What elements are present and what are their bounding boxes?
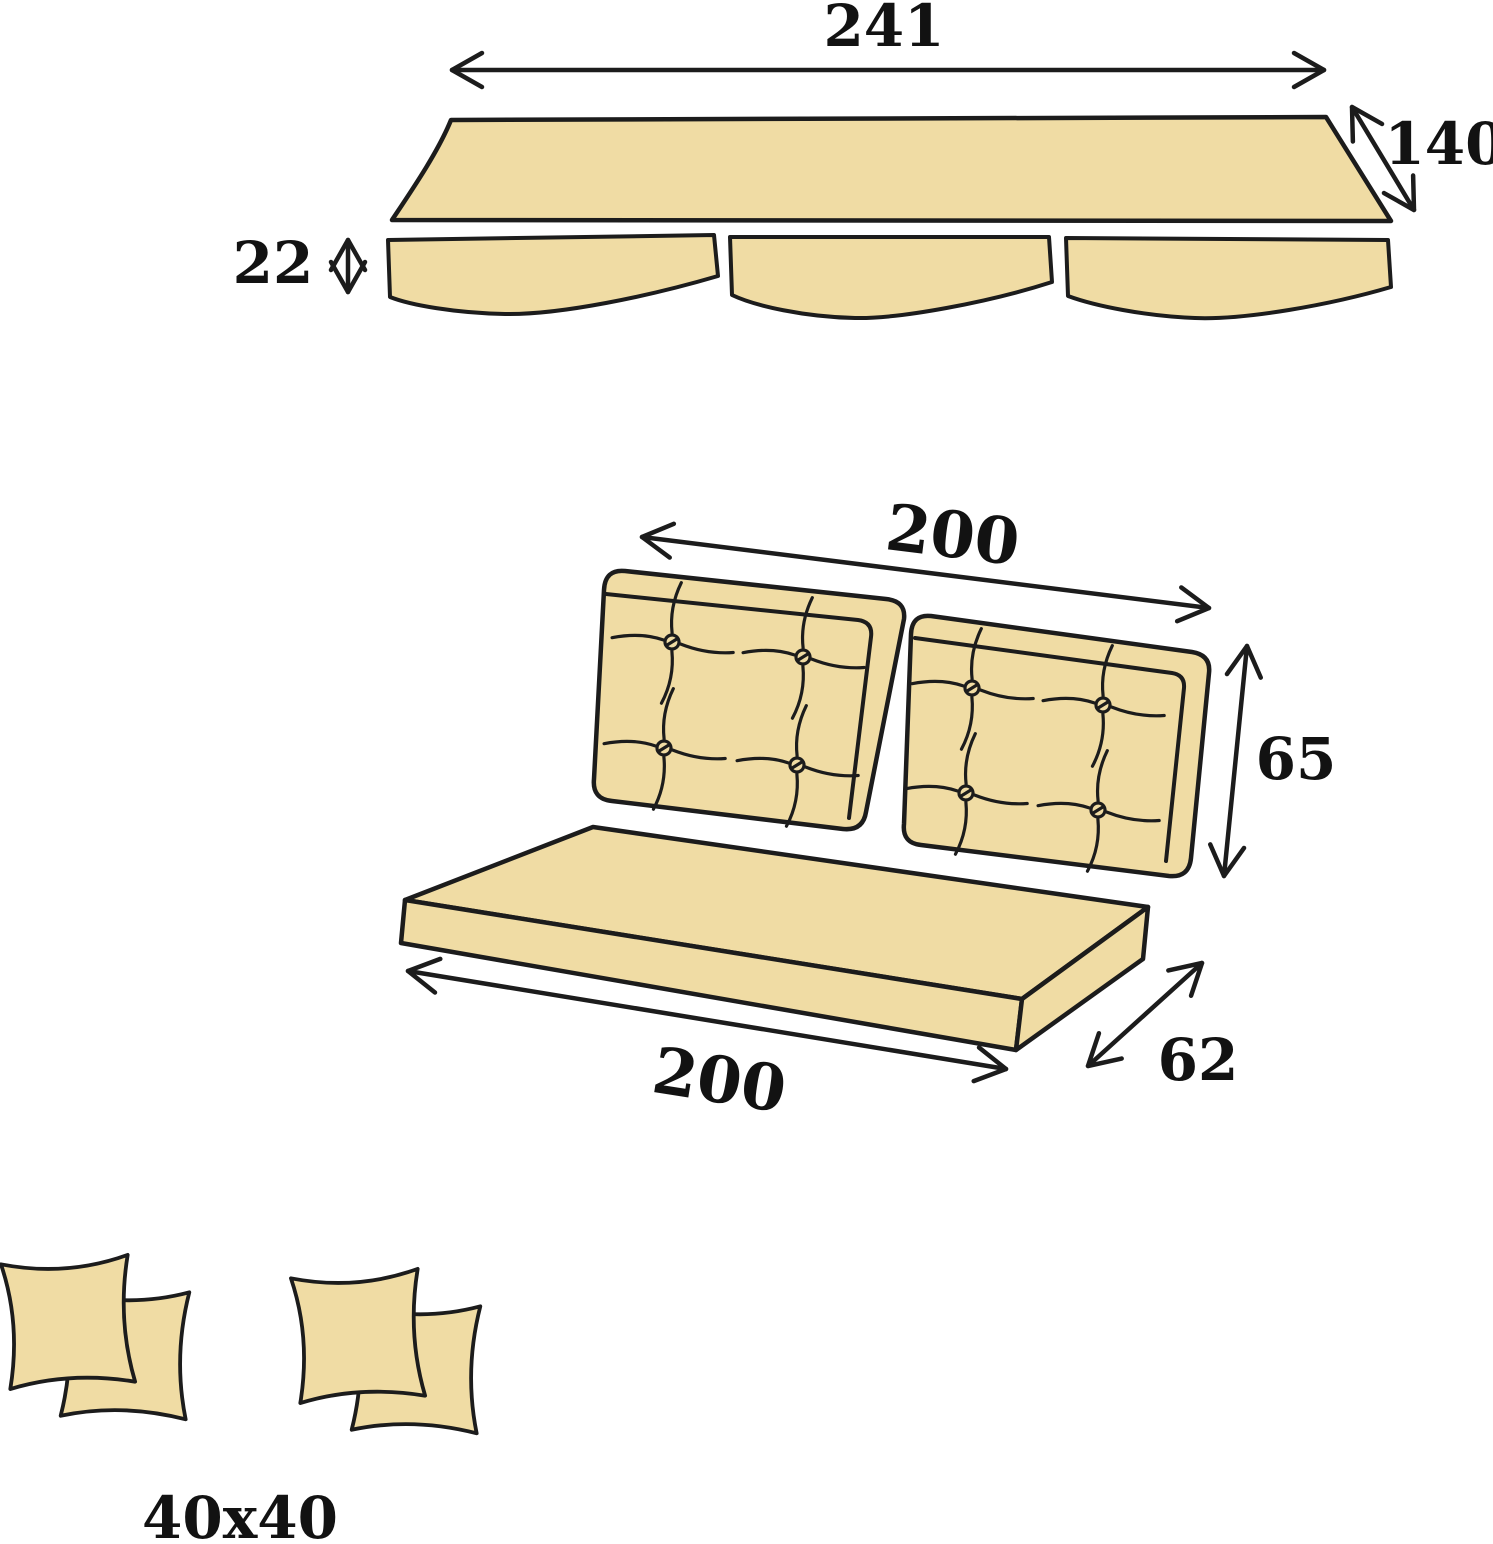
pillow-front	[1, 1255, 135, 1389]
dim-backrest-height: 65	[1207, 644, 1336, 878]
backrest-height-label: 65	[1256, 725, 1337, 793]
valance-scallop-right	[1066, 238, 1391, 318]
canopy-group: 241 140 22	[233, 0, 1493, 318]
pillow-size-label: 40x40	[142, 1484, 338, 1544]
backrest-width-label: 200	[882, 490, 1024, 581]
pillow-front	[291, 1269, 425, 1403]
dim-canopy-width: 241	[452, 0, 1324, 87]
seat-depth-label: 62	[1158, 1026, 1239, 1094]
bench-group: 200 65 200 62	[401, 490, 1336, 1128]
valance-scallop-left	[388, 235, 718, 314]
pillow-pair-2	[291, 1269, 484, 1437]
canopy-top-panel	[392, 117, 1391, 221]
pillow-pair-1	[1, 1255, 193, 1423]
cushion-dimension-diagram: 241 140 22	[0, 0, 1493, 1544]
backrest-cushion-right	[899, 616, 1209, 879]
dimension-line	[1224, 646, 1247, 876]
canopy-depth-label: 140	[1384, 110, 1493, 178]
backrest-cushion-left	[594, 571, 904, 834]
diagram-canvas: 241 140 22	[0, 0, 1493, 1544]
seat-width-label: 200	[648, 1033, 792, 1128]
canopy-width-label: 241	[823, 0, 944, 60]
cushion-outline	[904, 616, 1209, 876]
valance-height-label: 22	[233, 229, 314, 297]
valance-scallop-middle	[730, 237, 1052, 318]
dim-valance-height: 22	[233, 229, 365, 297]
pillows-group: 40x40	[1, 1255, 484, 1544]
